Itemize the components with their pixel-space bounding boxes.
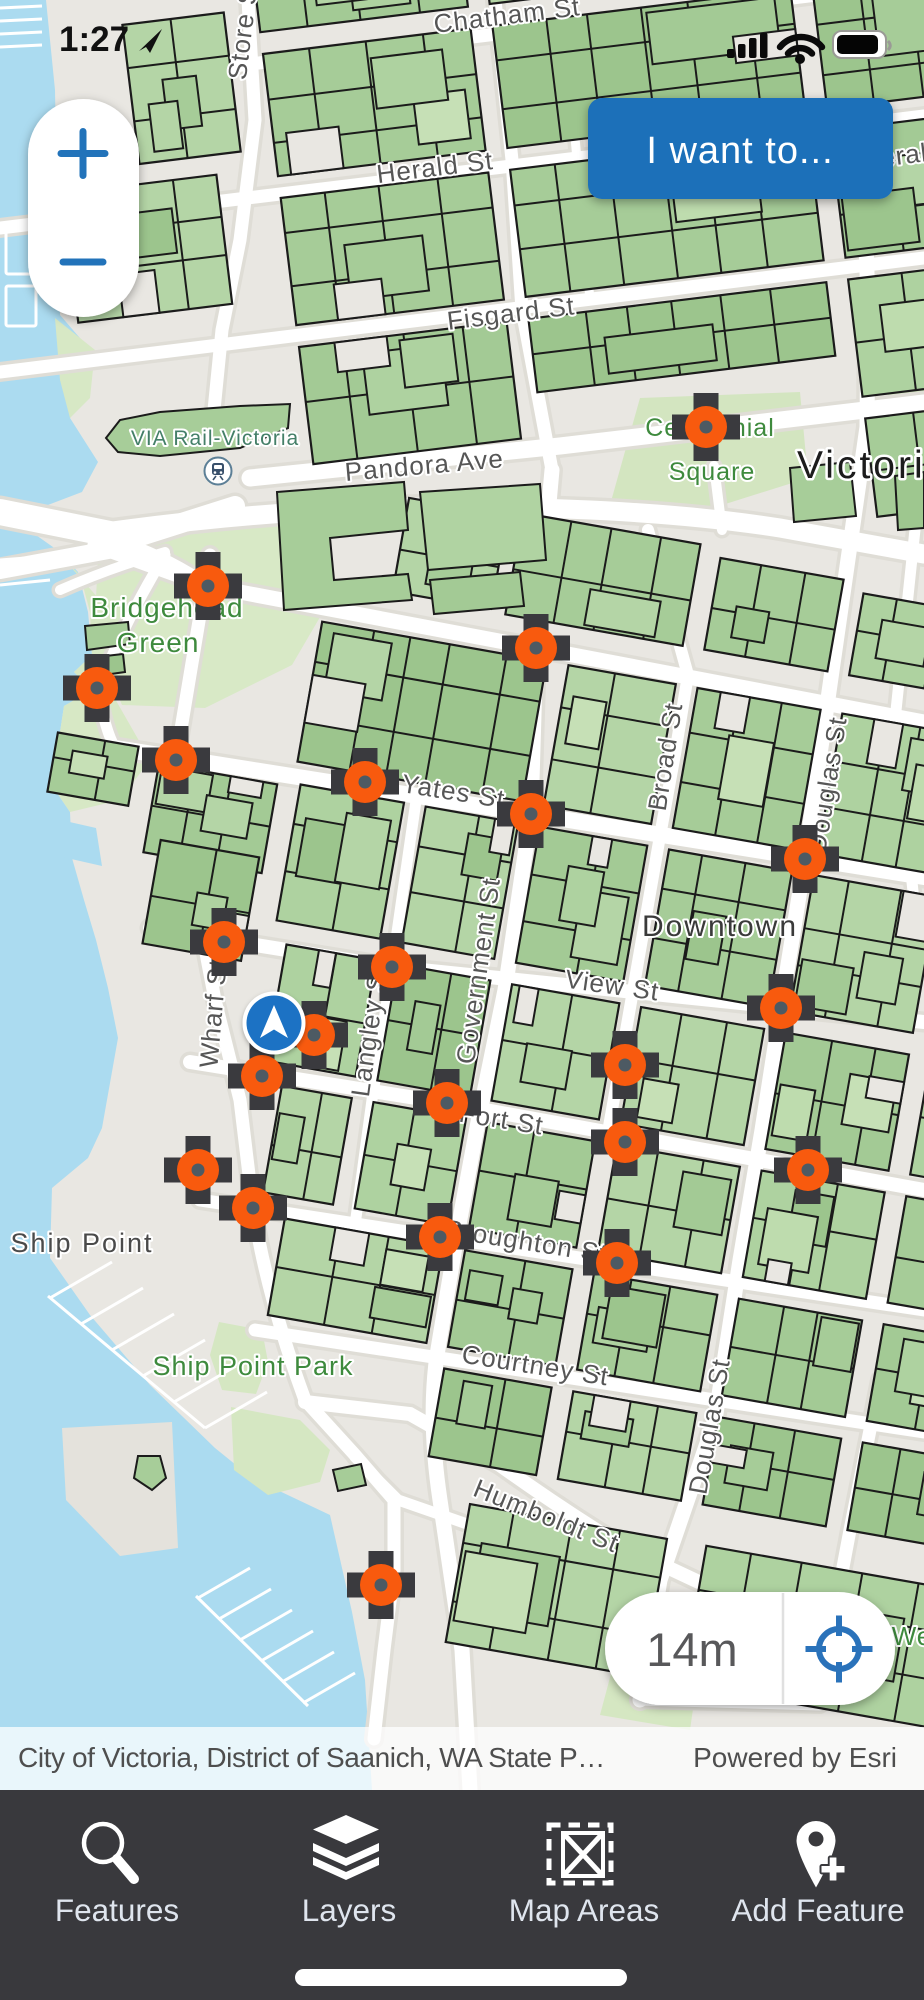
svg-text:Square: Square [669, 458, 756, 486]
svg-text:Downtown: Downtown [642, 910, 798, 943]
svg-text:We: We [892, 1621, 924, 1651]
svg-text:Green: Green [117, 627, 200, 658]
svg-text:14m: 14m [646, 1623, 737, 1676]
svg-text:Layers: Layers [302, 1892, 397, 1928]
svg-text:Victoria: Victoria [797, 444, 924, 487]
svg-text:Add Feature: Add Feature [731, 1892, 904, 1928]
svg-text:Features: Features [55, 1892, 179, 1928]
svg-text:Ship Point: Ship Point [10, 1228, 153, 1258]
svg-text:Map Areas: Map Areas [509, 1892, 660, 1928]
svg-text:I want to...: I want to... [646, 130, 833, 172]
svg-text:1:27: 1:27 [59, 20, 129, 59]
svg-text:Powered by Esri: Powered by Esri [693, 1742, 897, 1773]
svg-text:Ship Point Park: Ship Point Park [152, 1351, 353, 1381]
svg-text:VIA Rail-Victoria: VIA Rail-Victoria [131, 427, 299, 450]
svg-text:City of Victoria, District of: City of Victoria, District of Saanich, W… [18, 1742, 605, 1773]
